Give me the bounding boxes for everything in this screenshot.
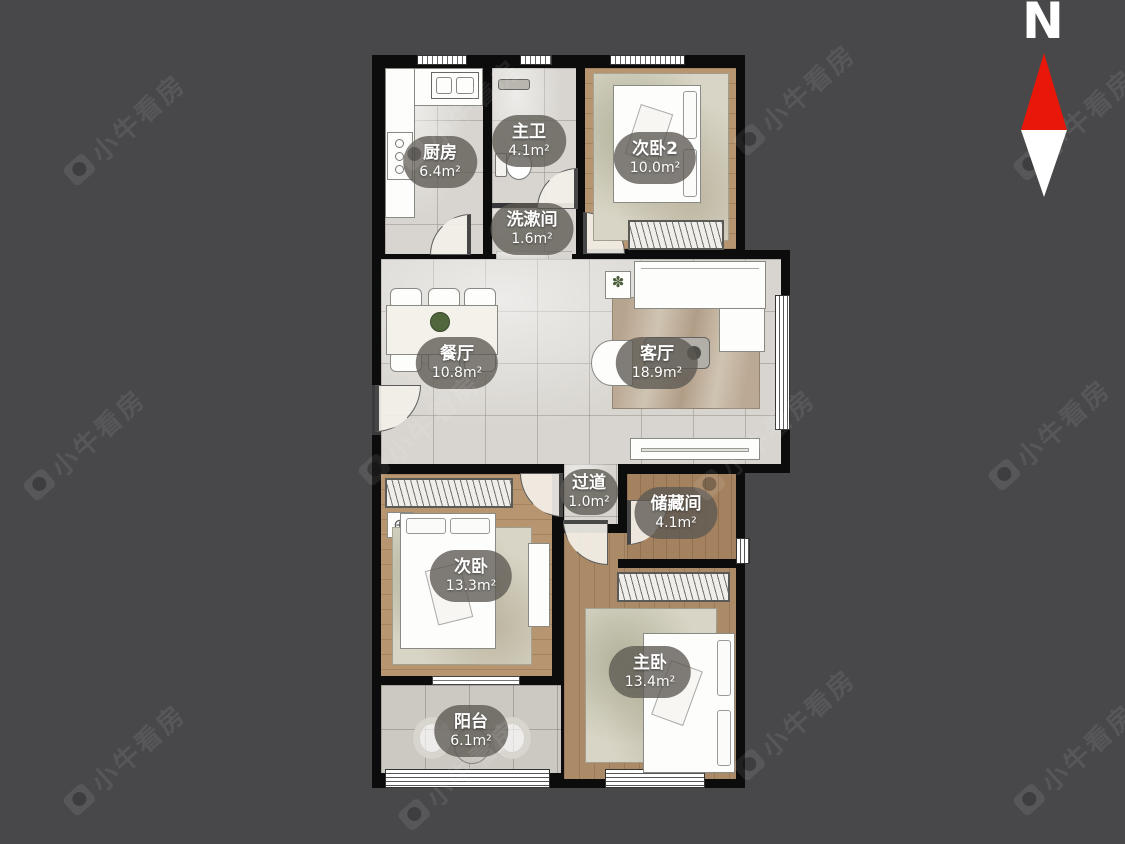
pillow <box>717 710 731 766</box>
sink-basin <box>456 77 474 94</box>
kitchen-sink <box>431 72 479 99</box>
room-area: 4.1m² <box>651 515 702 532</box>
room-label-second-bedroom: 次卧 13.3m² <box>430 550 512 602</box>
bedroom-2-wardrobe <box>628 220 724 250</box>
storage-bottom-wall <box>618 559 745 568</box>
watermark: 小牛看房 <box>57 695 193 823</box>
dining-chair <box>428 288 460 306</box>
sink-basin <box>436 77 452 94</box>
living-plant-box: ✽ <box>605 271 631 299</box>
niu-camera-logo-icon <box>62 782 97 817</box>
pillow <box>450 518 490 534</box>
room-area: 18.9m² <box>632 365 682 382</box>
sofa-corner <box>719 308 765 352</box>
room-area: 6.1m² <box>450 733 492 750</box>
watermark: 小牛看房 <box>17 380 153 508</box>
watermark: 小牛看房 <box>57 65 193 193</box>
room-name: 主卧 <box>625 653 675 674</box>
room-label-washroom: 洗漱间 1.6m² <box>491 203 574 255</box>
living-room-window <box>775 295 790 430</box>
kitchen-window <box>417 55 467 65</box>
bedroom-side-cabinet <box>528 543 550 627</box>
watermark: 小牛看房 <box>1007 695 1125 823</box>
watermark-text: 小牛看房 <box>1032 695 1125 800</box>
niu-camera-logo-icon <box>1012 782 1047 817</box>
watermark-text: 小牛看房 <box>1007 370 1118 475</box>
room-label-living: 客厅 18.9m² <box>616 337 698 389</box>
tv-stand <box>630 438 760 460</box>
balcony-window <box>385 769 550 788</box>
room-name: 阳台 <box>450 712 492 733</box>
niu-camera-logo-icon <box>62 152 97 187</box>
watermark-text: 小牛看房 <box>82 65 193 170</box>
dining-chair <box>464 288 496 306</box>
master-bedroom-wardrobe <box>617 572 730 602</box>
master-bath-window <box>520 55 552 65</box>
burner <box>395 139 404 148</box>
room-label-bedroom-2: 次卧2 10.0m² <box>614 132 696 184</box>
plant-icon: ✽ <box>612 273 625 291</box>
balcony-sliding-door <box>432 676 520 685</box>
sofa-back-line <box>641 268 759 269</box>
watermark-text: 小牛看房 <box>42 380 153 485</box>
room-area: 10.0m² <box>630 160 680 177</box>
room-area: 1.6m² <box>507 231 558 248</box>
tv-line <box>641 448 749 452</box>
sofa-horizontal <box>634 261 766 309</box>
room-name: 厨房 <box>419 143 461 164</box>
room-area: 13.3m² <box>446 578 496 595</box>
room-area: 6.4m² <box>419 164 461 181</box>
room-name: 次卧 <box>446 557 496 578</box>
pillow <box>406 518 446 534</box>
bedroom-2-window <box>610 55 685 65</box>
room-name: 餐厅 <box>432 344 482 365</box>
room-name: 洗漱间 <box>507 210 558 231</box>
room-area: 4.1m² <box>508 143 550 160</box>
watermark-text: 小牛看房 <box>82 695 193 800</box>
room-area: 10.8m² <box>432 365 482 382</box>
room-area: 1.0m² <box>568 494 610 511</box>
compass-arrow-icon <box>1014 50 1074 200</box>
niu-camera-logo-icon <box>397 797 432 832</box>
table-plant <box>430 312 450 332</box>
room-label-kitchen: 厨房 6.4m² <box>403 136 477 188</box>
compass-north-label: N <box>1022 0 1064 50</box>
room-name: 客厅 <box>632 344 682 365</box>
room-name: 主卫 <box>508 122 550 143</box>
floor-plan: ✽ ⊕ 厨房 6.4m² 主卫 4.1m² 次卧2 10.0m² 洗漱间 <box>372 55 790 788</box>
room-area: 13.4m² <box>625 674 675 691</box>
niu-camera-logo-icon <box>22 467 57 502</box>
storage-room-window <box>736 538 750 564</box>
pillow <box>717 640 731 696</box>
pillow <box>683 91 697 139</box>
niu-camera-logo-icon <box>987 457 1022 492</box>
room-label-balcony: 阳台 6.1m² <box>434 705 508 757</box>
room-name: 储藏间 <box>651 494 702 515</box>
room-label-storage: 储藏间 4.1m² <box>635 487 718 539</box>
dining-chair <box>390 288 422 306</box>
bath-faucet-fixture <box>498 79 530 90</box>
room-name: 过道 <box>568 473 610 494</box>
room-label-master-bath: 主卫 4.1m² <box>492 115 566 167</box>
room-label-hallway: 过道 1.0m² <box>560 469 618 515</box>
room-label-dining: 餐厅 10.8m² <box>416 337 498 389</box>
watermark: 小牛看房 <box>982 370 1118 498</box>
room-label-master-bedroom: 主卧 13.4m² <box>609 646 691 698</box>
room-name: 次卧2 <box>630 139 680 160</box>
second-bedroom-wardrobe <box>385 478 513 508</box>
